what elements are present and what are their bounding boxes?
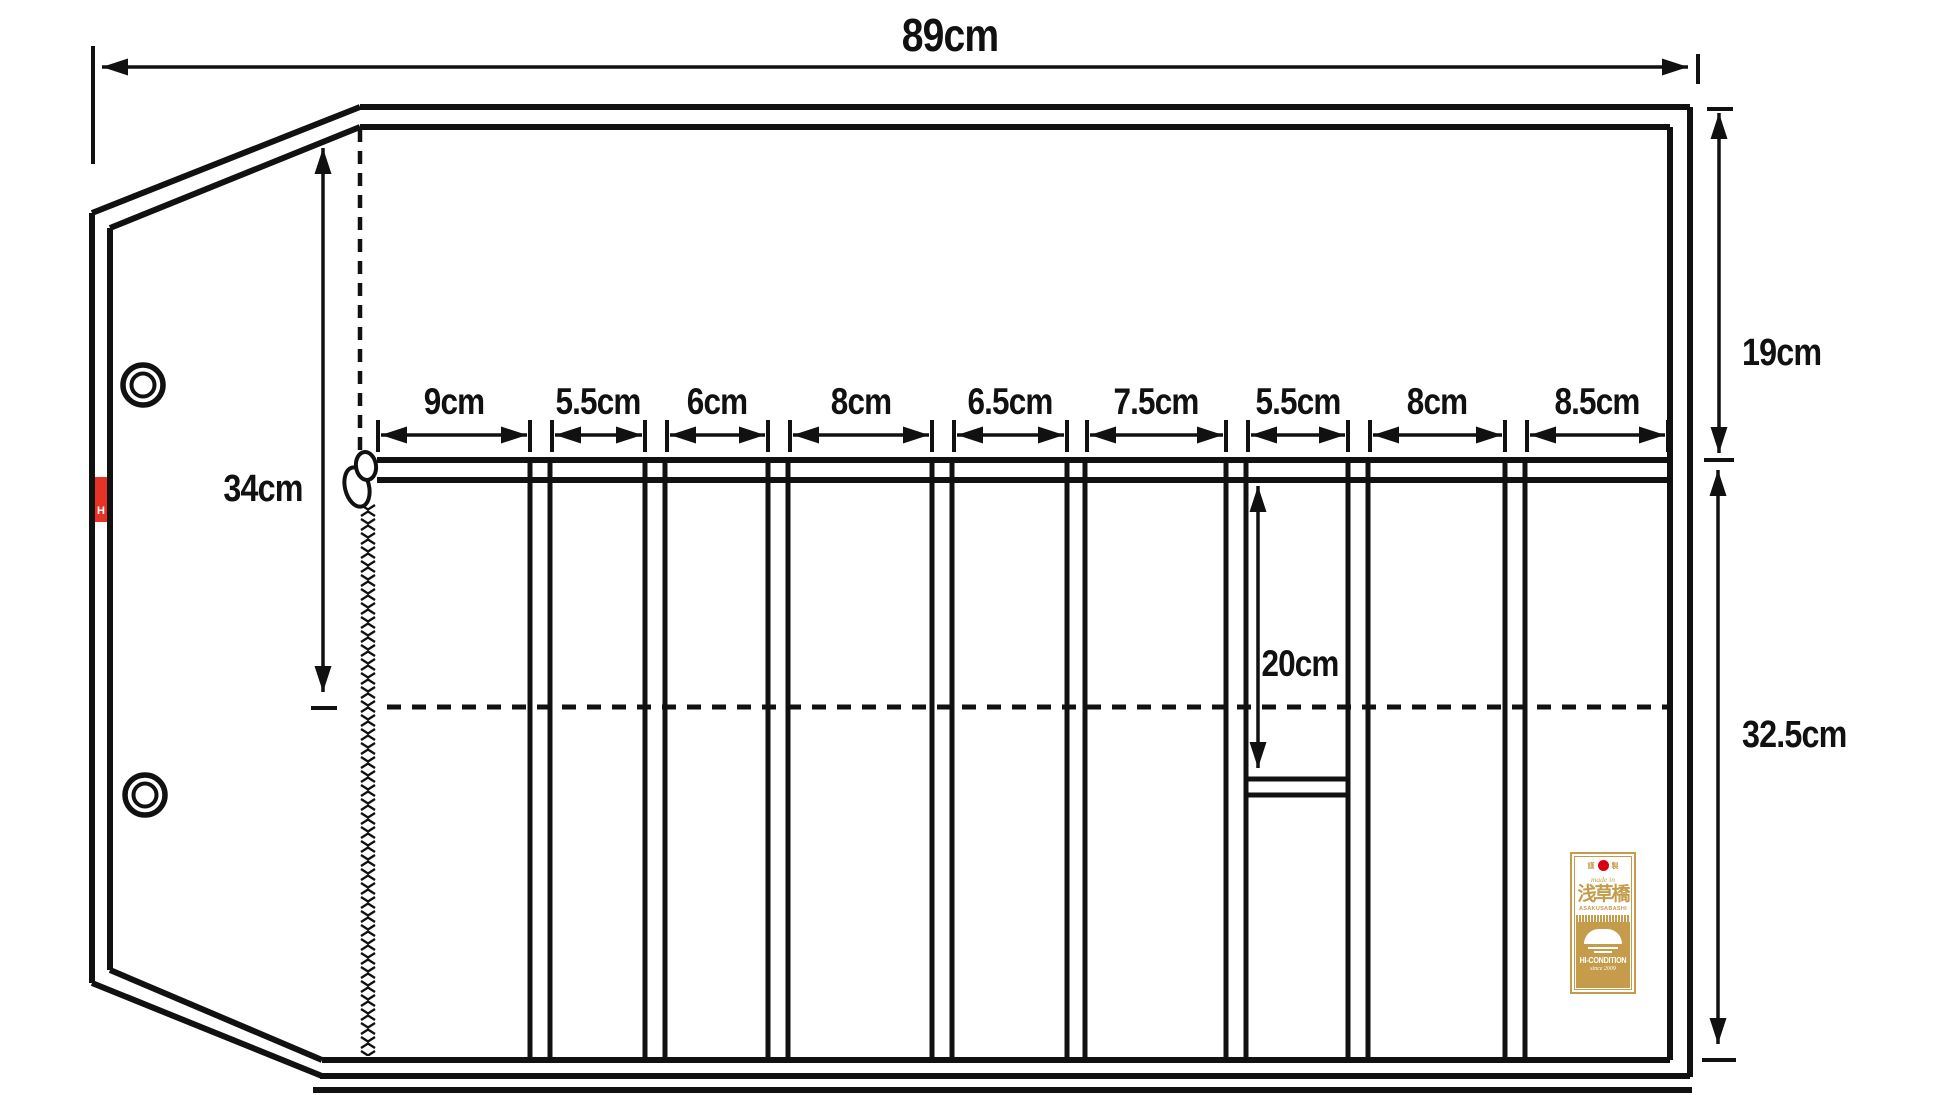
diagram-linework bbox=[0, 0, 1946, 1095]
brand-gold-block: HI-CONDITION since 2009 bbox=[1576, 922, 1630, 988]
brand-seal-row: 謹 製 bbox=[1588, 860, 1619, 871]
brand-seal-left: 謹 bbox=[1588, 861, 1595, 871]
pocket-width-label-2: 5.5cm bbox=[556, 383, 641, 420]
grommet-bottom-inner bbox=[134, 784, 157, 807]
pocket-width-label-7: 5.5cm bbox=[1256, 383, 1341, 420]
pocket-width-label-5: 6.5cm bbox=[968, 383, 1053, 420]
brand-seal-right: 製 bbox=[1612, 861, 1619, 871]
dim-label-lower-section: 32.5cm bbox=[1742, 716, 1846, 754]
dimension-arrowheads bbox=[102, 59, 1728, 1045]
small-pocket-seam bbox=[1248, 779, 1348, 795]
brand-romaji: ASAKUSABASHI bbox=[1579, 906, 1627, 912]
bridge-icon bbox=[1584, 929, 1622, 944]
left-flap-outline bbox=[92, 107, 360, 1076]
grommet-top-inner bbox=[132, 374, 155, 397]
grommet-top bbox=[123, 365, 163, 405]
zipper-teeth bbox=[359, 503, 377, 1056]
wave-mark bbox=[1588, 947, 1618, 949]
pocket-width-label-6: 7.5cm bbox=[1114, 383, 1199, 420]
dimension-ticks bbox=[93, 46, 1736, 1060]
brand-label: 謹 製 made in 浅草橋 ASAKUSABASHI HI-CONDITIO… bbox=[1570, 852, 1636, 994]
brand-tick-band bbox=[1576, 915, 1630, 922]
brand-kanji: 浅草橋 bbox=[1577, 885, 1628, 904]
brand-since: since 2009 bbox=[1590, 966, 1616, 972]
dim-label-total-width: 89cm bbox=[902, 12, 999, 58]
pocket-width-label-9: 8.5cm bbox=[1555, 383, 1640, 420]
grommets bbox=[123, 365, 165, 815]
knife-roll-dimension-diagram: 89cm 34cm 19cm 32.5cm 20cm 9cm 5.5cm 6cm… bbox=[0, 0, 1946, 1095]
dimension-lines bbox=[102, 67, 1719, 1044]
pocket-width-label-1: 9cm bbox=[424, 383, 484, 420]
brand-label-inner: 謹 製 made in 浅草橋 ASAKUSABASHI HI-CONDITIO… bbox=[1574, 856, 1632, 990]
japan-flag-icon bbox=[1598, 860, 1609, 871]
pocket-width-label-4: 8cm bbox=[831, 383, 891, 420]
brand-name: HI-CONDITION bbox=[1580, 956, 1627, 965]
grommet-bottom bbox=[125, 775, 165, 815]
pocket-width-label-8: 8cm bbox=[1407, 383, 1467, 420]
pocket-dividers bbox=[530, 460, 1525, 1060]
side-tag-letter: H bbox=[94, 477, 108, 522]
zipper bbox=[341, 451, 378, 1056]
roll-body-outline bbox=[313, 107, 1692, 1090]
pocket-width-label-3: 6cm bbox=[687, 383, 747, 420]
wave-mark bbox=[1594, 951, 1612, 953]
dim-label-small-pocket-depth: 20cm bbox=[1261, 645, 1338, 682]
dim-label-flap-height: 34cm bbox=[223, 470, 302, 508]
dim-label-upper-section: 19cm bbox=[1742, 334, 1821, 372]
zipper-slider bbox=[354, 451, 378, 482]
